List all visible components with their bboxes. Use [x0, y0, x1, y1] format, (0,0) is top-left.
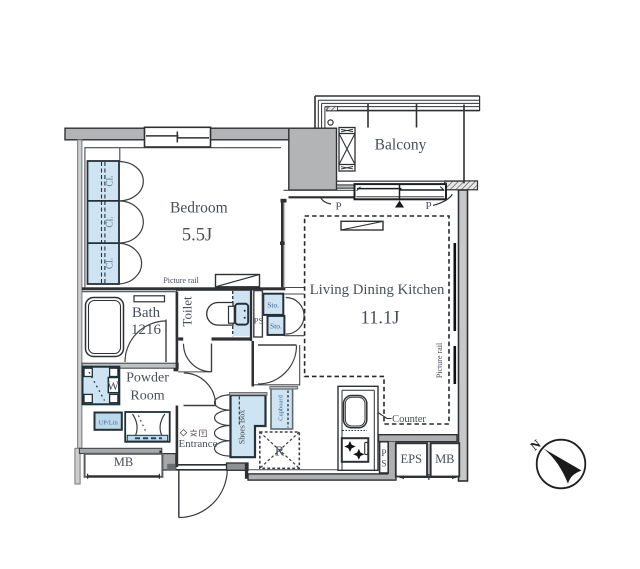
svg-text:Cl.: Cl.	[106, 175, 116, 186]
svg-text:R: R	[275, 445, 285, 460]
svg-text:PS: PS	[254, 316, 264, 326]
svg-text:Sto.: Sto.	[267, 301, 279, 310]
svg-text:Picture rail: Picture rail	[163, 276, 199, 285]
svg-text:Cl.: Cl.	[106, 258, 116, 269]
svg-text:1216: 1216	[131, 322, 162, 338]
svg-text:11.1J: 11.1J	[361, 309, 400, 329]
svg-text:MB: MB	[114, 455, 133, 469]
svg-text:5.5J: 5.5J	[182, 226, 212, 246]
svg-text:Picture rail: Picture rail	[435, 342, 444, 378]
svg-text:Toilet: Toilet	[180, 296, 195, 327]
svg-text:Counter: Counter	[392, 414, 426, 425]
svg-text:Powder: Powder	[126, 371, 169, 386]
svg-text:P: P	[381, 449, 386, 459]
svg-text:Sto.: Sto.	[270, 322, 282, 331]
svg-text:EPS: EPS	[401, 452, 423, 466]
svg-text:Shoes Box: Shoes Box	[238, 410, 247, 444]
svg-text:W: W	[107, 379, 119, 393]
svg-text:S: S	[381, 460, 386, 470]
svg-text:Bedroom: Bedroom	[170, 200, 228, 217]
svg-text:Living Dining Kitchen: Living Dining Kitchen	[310, 282, 445, 298]
svg-text:UP/Lin: UP/Lin	[99, 420, 119, 427]
svg-text:P: P	[426, 200, 432, 212]
svg-text:P: P	[335, 201, 341, 213]
svg-text:Room: Room	[130, 389, 164, 404]
svg-text:Cupboard: Cupboard	[278, 394, 285, 420]
svg-text:MB: MB	[435, 452, 454, 466]
svg-text:Entrance: Entrance	[178, 438, 217, 450]
svg-text:Bath: Bath	[132, 305, 161, 321]
svg-text:Balcony: Balcony	[375, 137, 427, 154]
svg-text:Cl.: Cl.	[106, 216, 116, 227]
